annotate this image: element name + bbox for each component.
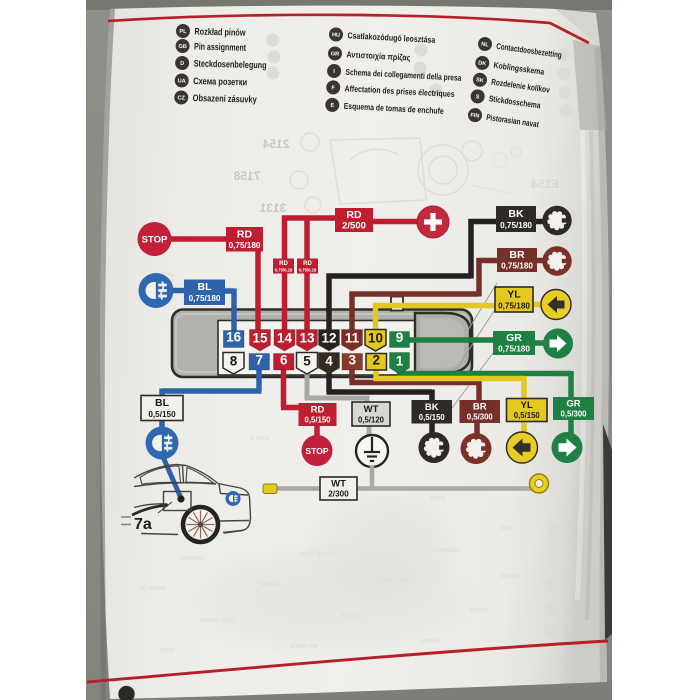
svg-text:E: E: [330, 103, 334, 109]
svg-text:15: 15: [252, 330, 268, 345]
svg-text:0,5/120: 0,5/120: [358, 415, 385, 424]
svg-text:WT: WT: [331, 479, 346, 490]
svg-text:woma lnm: woma lnm: [199, 617, 234, 624]
svg-text:0,75/0,18: 0,75/0,18: [299, 267, 317, 272]
svg-text:WT: WT: [364, 404, 379, 415]
svg-text:0,75/0,18: 0,75/0,18: [275, 267, 293, 272]
svg-text:RD: RD: [237, 228, 253, 240]
svg-text:0,5/150: 0,5/150: [148, 410, 176, 419]
svg-text:lamn onm: lamn onm: [380, 577, 413, 584]
svg-text:Схема розетки: Схема розетки: [193, 76, 247, 88]
svg-text:0,5/150: 0,5/150: [419, 413, 446, 422]
svg-text:4: 4: [325, 353, 333, 368]
svg-text:BR: BR: [473, 402, 487, 413]
svg-text:BK: BK: [508, 208, 524, 220]
svg-text:GR: GR: [331, 51, 340, 57]
svg-text:0,75/180: 0,75/180: [498, 344, 530, 353]
svg-text:CZ: CZ: [177, 95, 185, 101]
svg-text:11: 11: [345, 330, 360, 345]
svg-text:3: 3: [348, 352, 356, 367]
svg-text:GR: GR: [506, 332, 522, 344]
svg-text:Obsazení zásuvky: Obsazení zásuvky: [193, 93, 258, 106]
svg-text:BK: BK: [425, 402, 439, 413]
svg-text:sbemaun: sbemaun: [430, 547, 461, 554]
svg-text:2: 2: [372, 352, 380, 367]
svg-text:meno: meno: [470, 607, 489, 614]
svg-text:omna: omna: [260, 581, 279, 588]
svg-text:10: 10: [368, 330, 383, 345]
svg-text:HU: HU: [332, 32, 340, 38]
svg-text:lnm: lnm: [500, 525, 512, 532]
svg-text:alom nw: alom nw: [290, 643, 319, 650]
svg-text:RD: RD: [346, 209, 362, 221]
svg-text:0,75/180: 0,75/180: [498, 301, 530, 310]
svg-text:mano: mano: [500, 573, 519, 580]
svg-text:RD: RD: [303, 261, 312, 267]
svg-text:DK: DK: [478, 60, 487, 67]
svg-text:0,5/300: 0,5/300: [560, 410, 587, 419]
svg-text:mon: mon: [160, 647, 175, 654]
svg-text:8: 8: [230, 353, 238, 368]
svg-text:14: 14: [277, 330, 293, 345]
svg-text:SK: SK: [476, 77, 485, 84]
svg-text:0,75/180: 0,75/180: [501, 261, 533, 270]
svg-text:2/300: 2/300: [328, 490, 349, 499]
svg-text:E154: E154: [531, 177, 559, 191]
svg-text:0,75/180: 0,75/180: [189, 294, 221, 303]
svg-text:12: 12: [321, 330, 336, 345]
svg-text:9: 9: [396, 330, 404, 345]
svg-text:nomel: nomel: [420, 638, 441, 645]
svg-text:7: 7: [255, 352, 263, 367]
svg-text:RD: RD: [279, 261, 288, 267]
svg-text:BL: BL: [198, 281, 213, 293]
svg-text:p mnl: p mnl: [250, 435, 269, 442]
svg-text:0,5/300: 0,5/300: [467, 413, 494, 422]
svg-text:16: 16: [226, 330, 242, 345]
svg-text:GB: GB: [178, 44, 187, 50]
svg-text:2/500: 2/500: [342, 220, 366, 231]
svg-text:0,75/180: 0,75/180: [229, 241, 261, 250]
svg-text:2154: 2154: [262, 137, 289, 151]
svg-text:13: 13: [299, 330, 315, 345]
svg-text:PL: PL: [179, 29, 187, 35]
svg-text:RD: RD: [311, 405, 325, 416]
svg-text:5: 5: [303, 353, 311, 368]
svg-text:6: 6: [280, 352, 288, 367]
svg-text:Steckdosenbelegung: Steckdosenbelegung: [193, 58, 266, 71]
svg-text:3131: 3131: [259, 201, 286, 215]
svg-text:7a: 7a: [134, 516, 152, 533]
svg-text:BR: BR: [509, 249, 525, 261]
svg-text:UA: UA: [178, 78, 186, 84]
svg-text:nlo am: nlo am: [340, 612, 363, 619]
svg-text:STOP: STOP: [142, 235, 168, 246]
svg-text:aomnw: aomnw: [180, 555, 205, 562]
svg-text:YL: YL: [507, 289, 521, 301]
svg-text:Rozkład pinów: Rozkład pinów: [194, 27, 246, 39]
svg-text:omn: omn: [430, 495, 445, 502]
svg-text:FIN: FIN: [470, 112, 480, 119]
svg-text:1: 1: [396, 353, 404, 368]
svg-text:umil anmo: umil anmo: [300, 551, 335, 558]
svg-text:0,75/180: 0,75/180: [500, 221, 532, 230]
svg-text:Pin assignment: Pin assignment: [194, 41, 247, 53]
svg-text:BL: BL: [155, 397, 170, 409]
svg-text:YL: YL: [521, 400, 533, 411]
svg-text:NL: NL: [481, 41, 490, 48]
svg-text:STOP: STOP: [305, 446, 329, 456]
svg-text:0,5/150: 0,5/150: [514, 411, 541, 420]
svg-text:nl mnao: nl mnao: [140, 585, 167, 592]
svg-text:GR: GR: [566, 399, 580, 410]
svg-text:7158: 7158: [233, 169, 260, 183]
svg-text:D: D: [180, 61, 184, 67]
svg-text:0,5/150: 0,5/150: [304, 416, 331, 425]
